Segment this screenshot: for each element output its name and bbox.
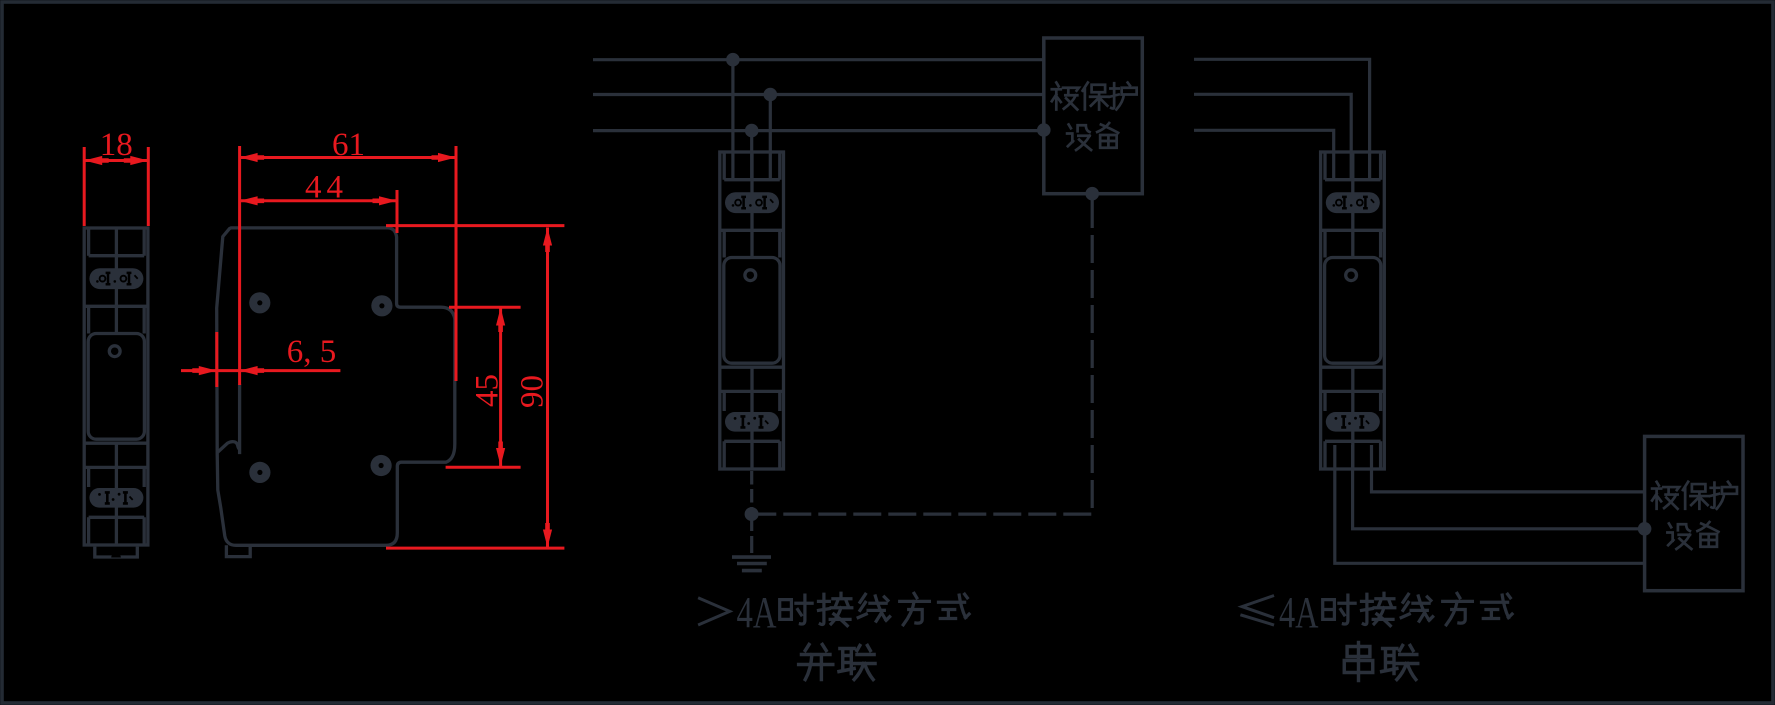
svg-text:61: 61 [332,127,365,163]
svg-text:4A: 4A [737,588,777,637]
svg-text:18: 18 [100,127,133,163]
svg-text:4A: 4A [1279,588,1319,637]
svg-text:6, 5: 6, 5 [287,334,337,370]
svg-text:90: 90 [515,375,551,408]
svg-text:45: 45 [470,374,506,407]
